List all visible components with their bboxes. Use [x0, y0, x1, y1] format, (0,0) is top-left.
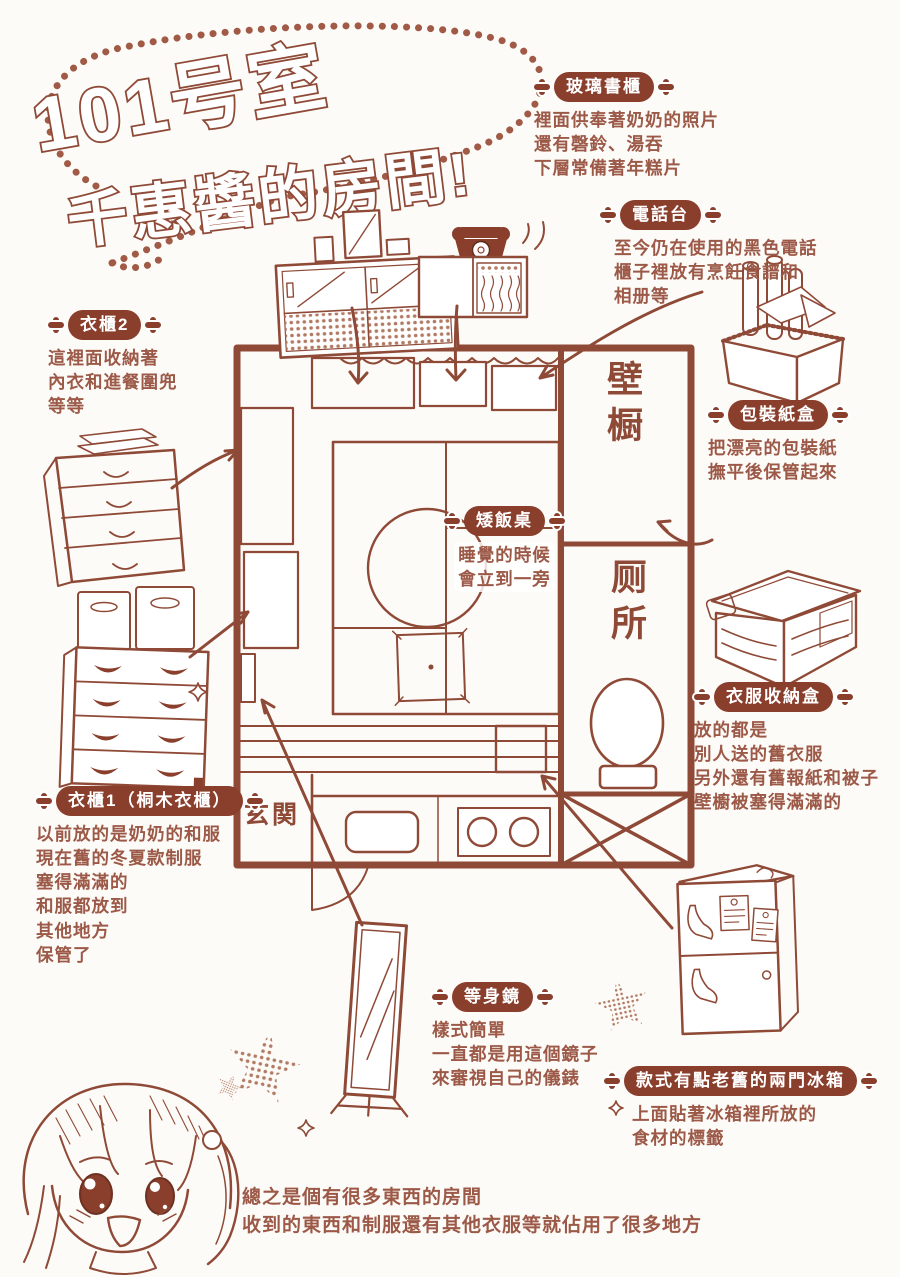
- hair-hatching: [56, 1096, 209, 1148]
- note-line: 把漂亮的包裝紙: [708, 436, 848, 460]
- note-text: 把漂亮的包裝紙 撫平後保管起來: [708, 436, 848, 484]
- mirror-illustration: [330, 918, 430, 1123]
- manga-room-page: { "page": { "title_line1": "101号室", "tit…: [0, 0, 900, 1277]
- four-petal-cross-icon: [705, 207, 721, 223]
- fridge-space-x: [561, 794, 691, 865]
- four-petal-cross-icon: [837, 689, 853, 705]
- badge-label: 玻璃書櫃: [554, 72, 654, 102]
- note-text: 睡覺的時候 會立到一旁: [454, 542, 555, 592]
- badge-clothes-storage-box: 衣服收納盒: [694, 682, 853, 712]
- note-line: 相册等: [614, 284, 818, 308]
- wardrobe2-illustration: [22, 424, 192, 589]
- note-wrapping-paper-box: 包裝紙盒 把漂亮的包裝紙 撫平後保管起來: [708, 400, 848, 484]
- chibi-ponytail: [203, 1131, 238, 1264]
- note-line: 下層常備著年糕片: [534, 156, 719, 180]
- badge-wrapping-paper-box: 包裝紙盒: [708, 400, 848, 430]
- plan-label-closet: 壁橱: [596, 360, 648, 452]
- footer-summary: 總之是個有很多東西的房間 收到的東西和制服還有其他衣服等就佔用了很多地方: [242, 1184, 702, 1239]
- note-line: 一直都是用這個鏡子: [432, 1042, 599, 1066]
- page-title-line1: 101号室: [26, 33, 335, 169]
- note-line: 上面貼著冰箱裡所放的: [632, 1102, 877, 1126]
- four-petal-cross-icon: [48, 317, 64, 333]
- four-petal-cross-icon: [832, 407, 848, 423]
- footer-line: 收到的東西和制服還有其他衣服等就佔用了很多地方: [242, 1212, 702, 1240]
- four-petal-cross-icon: [604, 1073, 620, 1089]
- note-glass-bookcase: 玻璃書櫃 裡面供奉著奶奶的照片 還有磬鈴、湯吞 下層常備著年糕片: [534, 72, 719, 180]
- note-line: 塞得滿滿的: [36, 870, 263, 894]
- clothes-storage-box-illustration: [700, 555, 875, 695]
- note-text: 至今仍在使用的黑色電話 櫃子裡放有烹飪食譜和 相册等: [586, 236, 818, 308]
- sink-icon: [346, 812, 418, 852]
- note-wardrobe1: 衣櫃1（桐木衣櫃） 以前放的是奶奶的和服 現在舊的冬夏款制服 塞得滿滿的 和服都…: [36, 786, 263, 967]
- note-line: 櫃子裡放有烹飪食譜和: [614, 260, 818, 284]
- note-line: 撫平後保管起來: [708, 460, 848, 484]
- badge-low-table: 矮飯桌: [444, 506, 565, 536]
- note-line: 內衣和進餐圍兜: [48, 370, 178, 394]
- four-petal-cross-icon: [708, 407, 724, 423]
- note-text: 放的都是 別人送的舊衣服 另外還有舊報紙和被子 壁櫥被塞得滿滿的: [694, 718, 879, 815]
- note-text: 以前放的是奶奶的和服 現在舊的冬夏款制服 塞得滿滿的 和服都放到 其他地方 保管…: [36, 822, 263, 967]
- badge-full-length-mirror: 等身鏡: [432, 982, 553, 1012]
- note-text: 樣式簡單 一直都是用這個鏡子 來審視自己的儀錶: [432, 1018, 599, 1090]
- note-line: 和服都放到: [36, 894, 263, 918]
- badge-wardrobe2: 衣櫃2: [48, 310, 161, 340]
- badge-label: 矮飯桌: [464, 506, 545, 536]
- chibi-eyes: [80, 1174, 174, 1214]
- note-fridge: 款式有點老舊的兩門冰箱 上面貼著冰箱裡所放的 食材的標籤: [604, 1066, 877, 1150]
- note-line: 至今仍在使用的黑色電話: [614, 236, 818, 260]
- note-line: 來審視自己的儀錶: [432, 1066, 599, 1090]
- four-petal-cross-icon: [694, 689, 710, 705]
- four-petal-cross-icon: [247, 793, 263, 809]
- chibi-bangs: [60, 1106, 196, 1190]
- four-petal-cross-icon: [658, 79, 674, 95]
- four-petal-cross-icon: [537, 989, 553, 1005]
- plan-wardrobe1: [244, 552, 298, 648]
- badge-wardrobe1: 衣櫃1（桐木衣櫃）: [36, 786, 263, 816]
- note-line: 裡面供奉著奶奶的照片: [534, 108, 719, 132]
- note-line: 食材的標籤: [632, 1126, 877, 1150]
- note-phone-stand: 電話台 至今仍在使用的黑色電話 櫃子裡放有烹飪食譜和 相册等: [586, 200, 818, 308]
- badge-fridge: 款式有點老舊的兩門冰箱: [604, 1066, 877, 1096]
- badge-label: 衣服收納盒: [714, 682, 833, 712]
- note-line: 以前放的是奶奶的和服: [36, 822, 263, 846]
- badge-label: 衣櫃1（桐木衣櫃）: [56, 786, 243, 816]
- note-line: 保管了: [36, 943, 263, 967]
- plan-glass-bookcase: [312, 358, 414, 408]
- plan-mirror-spot: [241, 654, 255, 702]
- four-petal-cross-icon: [444, 513, 460, 529]
- note-line: 別人送的舊衣服: [694, 742, 879, 766]
- plan-hatched-mat: [496, 726, 546, 772]
- badge-label: 包裝紙盒: [728, 400, 828, 430]
- four-petal-cross-icon: [36, 793, 52, 809]
- note-line: 還有磬鈴、湯吞: [534, 132, 719, 156]
- note-text: 上面貼著冰箱裡所放的 食材的標籤: [604, 1102, 877, 1150]
- four-petal-cross-icon: [549, 513, 565, 529]
- phone-stand-illustration: [415, 213, 555, 323]
- door-swing: [312, 865, 368, 910]
- phone-ring-arcs: [523, 222, 544, 249]
- note-line: 睡覺的時候: [458, 543, 551, 567]
- chibi-brows: [80, 1157, 172, 1164]
- note-line: 另外還有舊報紙和被子: [694, 766, 879, 790]
- footer-line: 總之是個有很多東西的房間: [242, 1184, 702, 1212]
- four-petal-cross-icon: [861, 1073, 877, 1089]
- badge-label: 衣櫃2: [68, 310, 141, 340]
- note-full-length-mirror: 等身鏡 樣式簡單 一直都是用這個鏡子 來審視自己的儀錶: [432, 982, 599, 1090]
- fridge-illustration: [662, 856, 812, 1051]
- note-line: 樣式簡單: [432, 1018, 599, 1042]
- paper-bags: [78, 587, 194, 650]
- note-line: 會立到一旁: [458, 567, 551, 591]
- chibi-shoulders: [90, 1252, 156, 1274]
- note-line: 等等: [48, 394, 178, 418]
- wardrobe1-illustration: [40, 580, 230, 795]
- chibi-character: [0, 1066, 250, 1277]
- plan-phone-stand: [420, 362, 486, 406]
- note-low-table: 矮飯桌 睡覺的時候 會立到一旁: [412, 506, 597, 592]
- note-line: 放的都是: [694, 718, 879, 742]
- plan-cushion: [393, 629, 470, 706]
- note-text: 裡面供奉著奶奶的照片 還有磬鈴、湯吞 下層常備著年糕片: [534, 108, 719, 180]
- floor-strips: [238, 726, 559, 772]
- chibi-mouth: [108, 1216, 140, 1246]
- note-line: 現在舊的冬夏款制服: [36, 846, 263, 870]
- mirror-stand: [331, 1093, 408, 1118]
- note-clothes-storage-box: 衣服收納盒 放的都是 別人送的舊衣服 另外還有舊報紙和被子 壁櫥被塞得滿滿的: [694, 682, 879, 815]
- badge-label: 等身鏡: [452, 982, 533, 1012]
- note-text: 這裡面收納著 內衣和進餐圍兜 等等: [48, 346, 178, 418]
- badge-label: 款式有點老舊的兩門冰箱: [624, 1066, 857, 1096]
- four-petal-cross-icon: [600, 207, 616, 223]
- note-wardrobe2: 衣櫃2 這裡面收納著 內衣和進餐圍兜 等等: [48, 310, 178, 418]
- plan-label-toilet: 厕所: [600, 558, 652, 650]
- four-petal-cross-icon: [534, 79, 550, 95]
- plan-top-right-cabinet: [492, 366, 556, 410]
- plan-wardrobe2: [241, 408, 293, 544]
- note-line: 其他地方: [36, 919, 263, 943]
- note-line: 壁櫥被塞得滿滿的: [694, 790, 879, 814]
- four-petal-cross-icon: [145, 317, 161, 333]
- four-petal-cross-icon: [432, 989, 448, 1005]
- toilet-icon: [591, 679, 663, 788]
- stove-icon: [458, 808, 550, 856]
- badge-glass-bookcase: 玻璃書櫃: [534, 72, 674, 102]
- badge-label: 電話台: [620, 200, 701, 230]
- badge-phone-stand: 電話台: [586, 200, 721, 230]
- note-line: 這裡面收納著: [48, 346, 178, 370]
